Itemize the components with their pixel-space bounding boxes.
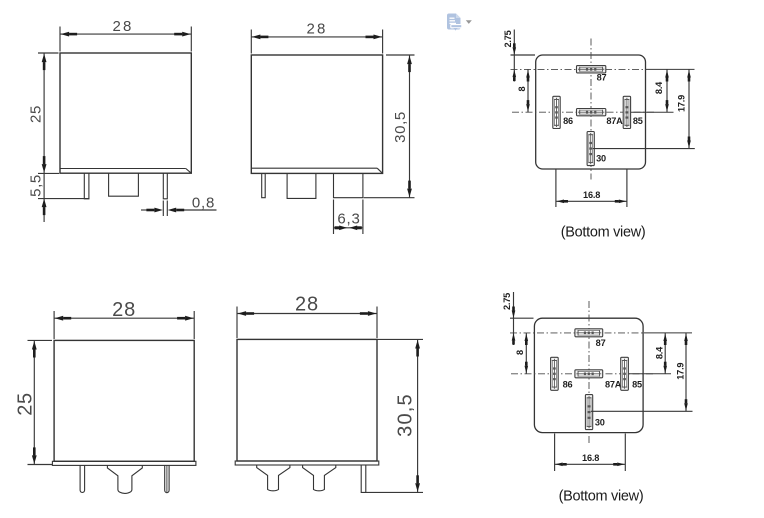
svg-text:8.4: 8.4 bbox=[654, 81, 664, 94]
svg-text:87A: 87A bbox=[606, 116, 623, 126]
svg-text:16.8: 16.8 bbox=[582, 453, 599, 463]
svg-text:8: 8 bbox=[515, 350, 525, 355]
svg-text:(Bottom view): (Bottom view) bbox=[559, 488, 644, 504]
svg-text:8: 8 bbox=[517, 86, 527, 91]
svg-text:30,5: 30,5 bbox=[395, 393, 417, 437]
svg-text:17.9: 17.9 bbox=[676, 95, 686, 112]
svg-text:28: 28 bbox=[295, 294, 319, 316]
svg-text:2.75: 2.75 bbox=[503, 30, 513, 47]
svg-text:28: 28 bbox=[112, 299, 136, 321]
svg-text:28: 28 bbox=[306, 21, 327, 38]
svg-text:85: 85 bbox=[633, 116, 643, 126]
svg-text:85: 85 bbox=[632, 380, 642, 390]
svg-text:17.9: 17.9 bbox=[675, 363, 685, 380]
svg-text:6,3: 6,3 bbox=[337, 210, 360, 227]
svg-text:16.8: 16.8 bbox=[583, 190, 600, 200]
svg-text:30,5: 30,5 bbox=[392, 111, 409, 143]
svg-text:30: 30 bbox=[595, 417, 605, 427]
svg-text:86: 86 bbox=[563, 380, 573, 390]
svg-text:25: 25 bbox=[28, 105, 45, 123]
svg-text:87: 87 bbox=[597, 73, 607, 83]
svg-text:28: 28 bbox=[112, 18, 133, 35]
svg-text:5,5: 5,5 bbox=[27, 174, 44, 197]
svg-text:25: 25 bbox=[15, 392, 37, 415]
svg-text:30: 30 bbox=[596, 153, 606, 163]
svg-text:(Bottom view): (Bottom view) bbox=[561, 224, 646, 240]
svg-text:86: 86 bbox=[563, 116, 573, 126]
svg-text:87: 87 bbox=[596, 338, 606, 348]
svg-text:2.75: 2.75 bbox=[502, 293, 512, 310]
svg-text:0,8: 0,8 bbox=[192, 194, 215, 211]
svg-text:8.4: 8.4 bbox=[654, 346, 664, 359]
svg-text:87A: 87A bbox=[605, 380, 622, 390]
